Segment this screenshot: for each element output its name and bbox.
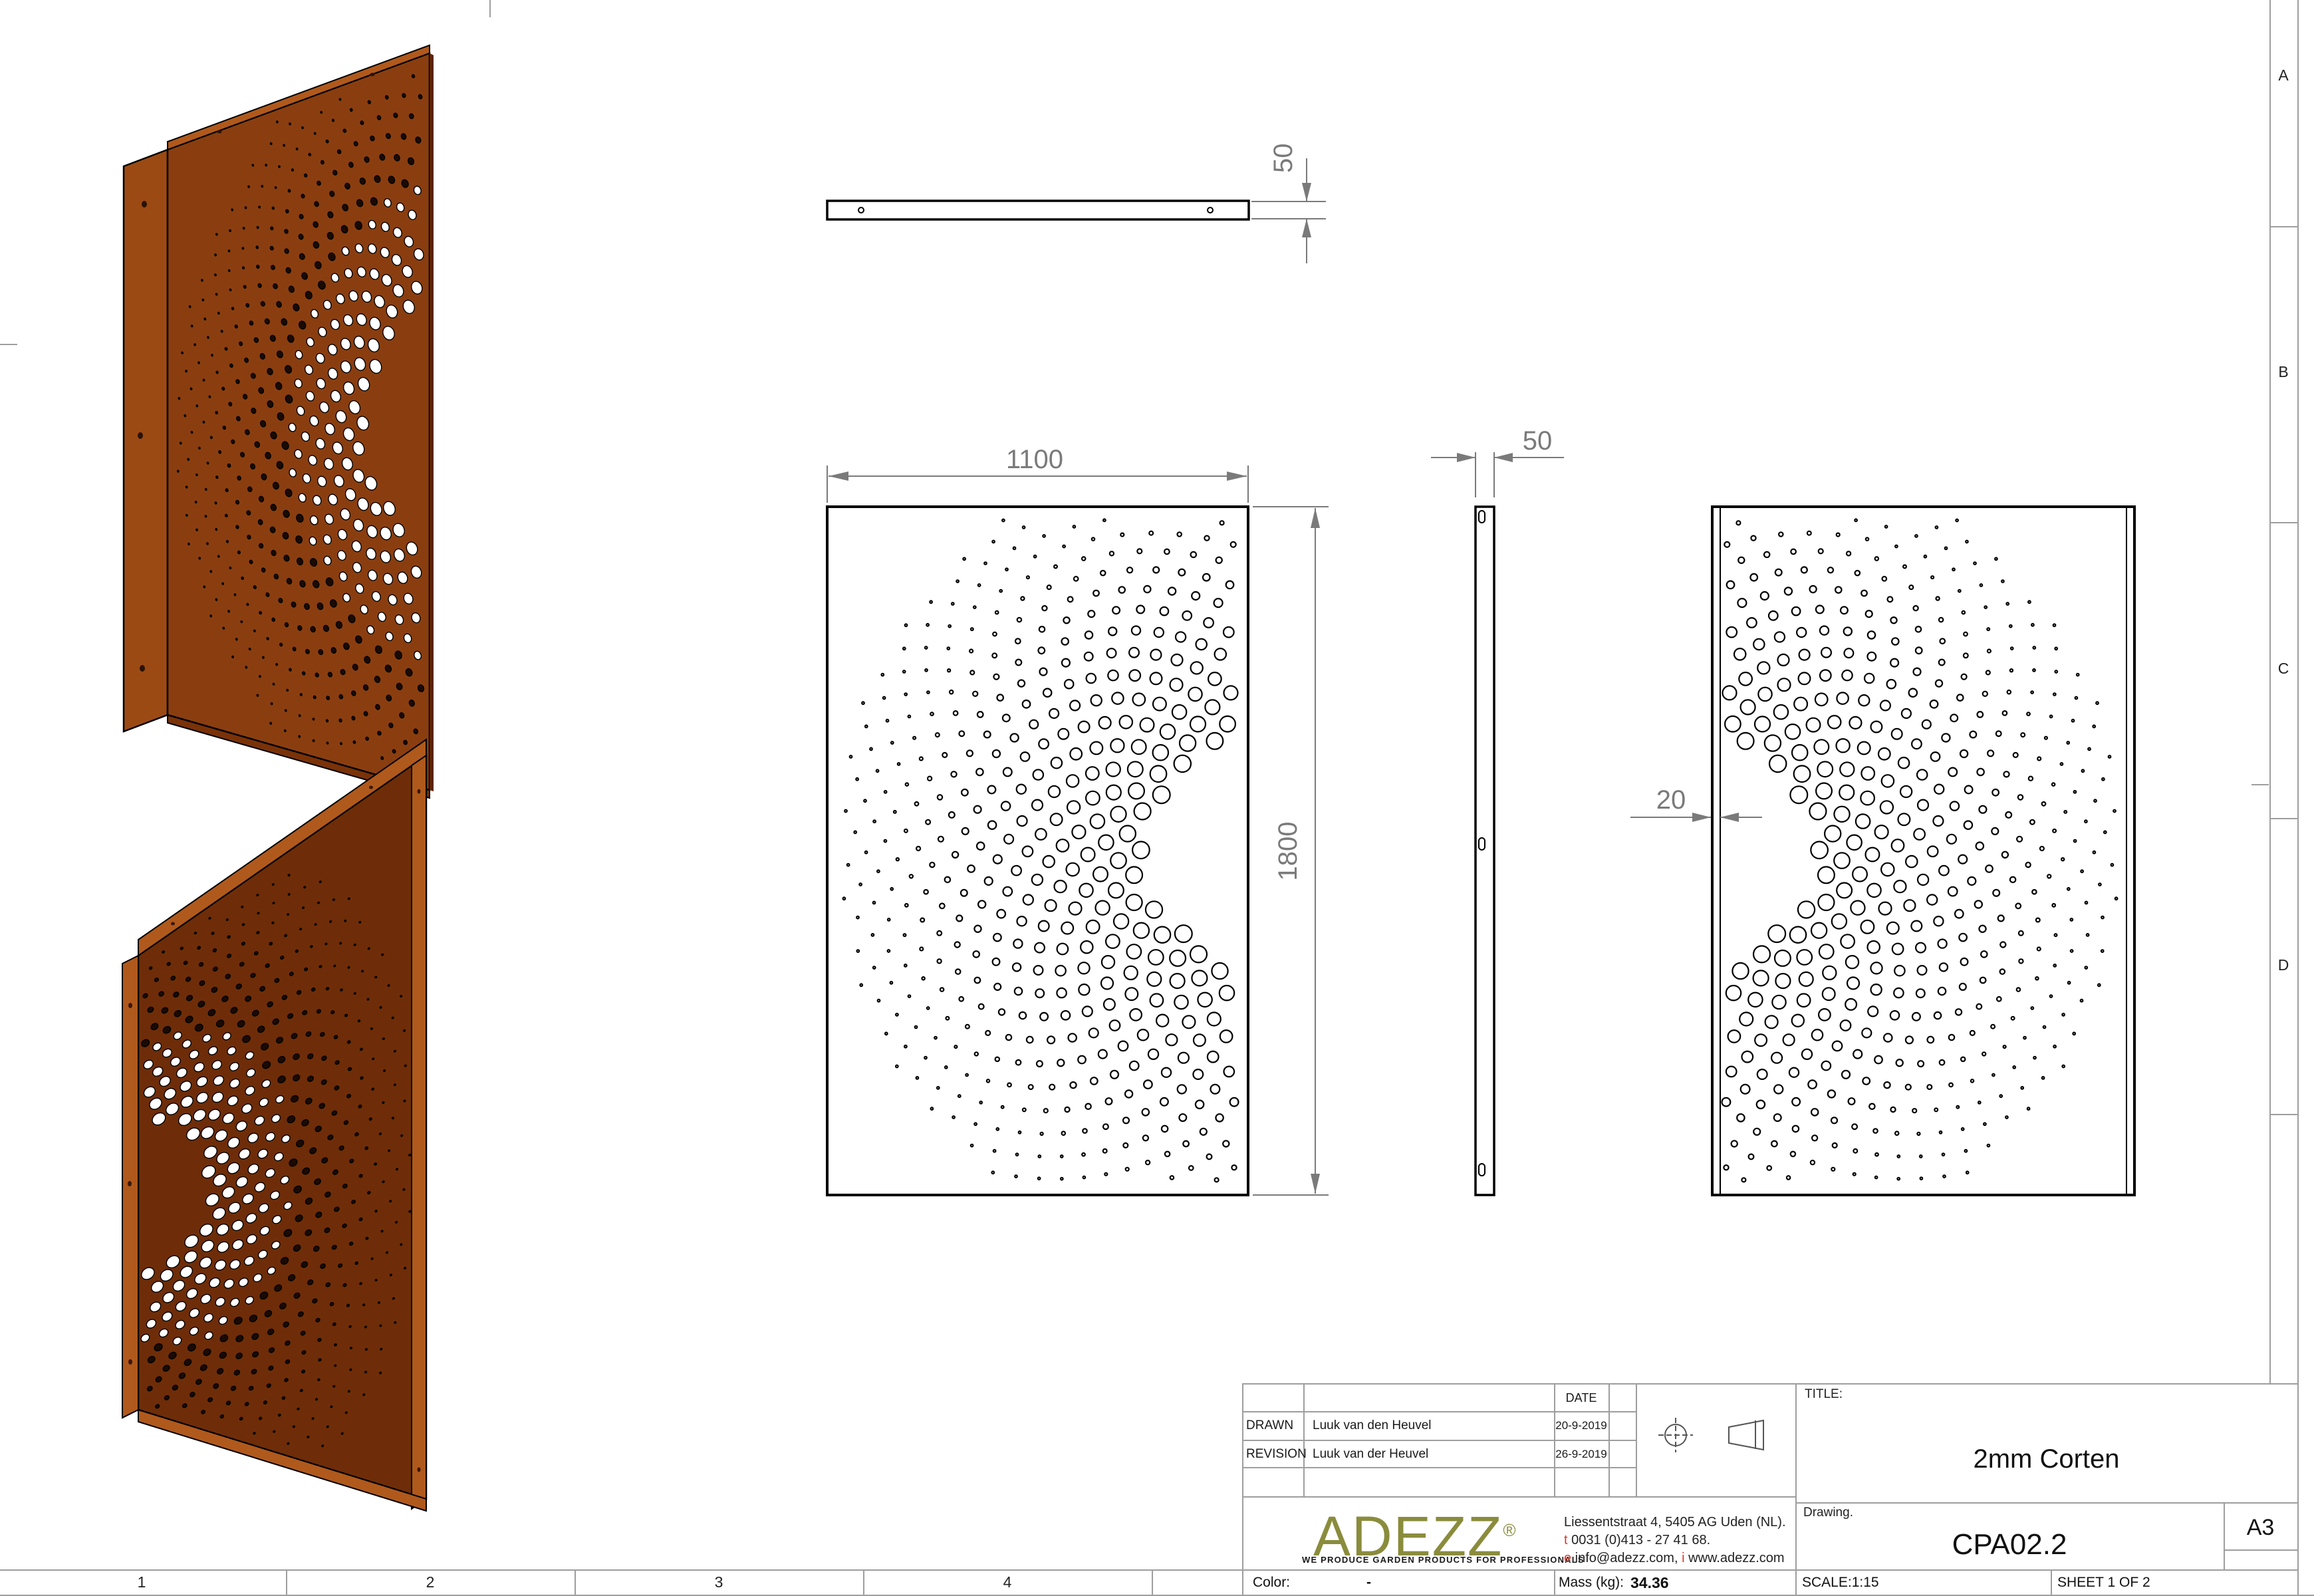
perforation-hole <box>1110 1071 1118 1079</box>
perforation-hole <box>309 153 311 156</box>
perforation-hole <box>1747 618 1757 628</box>
perforation-hole <box>2071 950 2073 952</box>
perforation-hole <box>1906 1085 1911 1090</box>
perforation-hole <box>2053 964 2056 967</box>
perforation-hole <box>1040 1013 1048 1021</box>
color-value: - <box>1366 1575 1371 1591</box>
perforation-hole <box>193 343 195 346</box>
perforation-hole <box>243 285 247 289</box>
perforation-hole <box>326 140 329 143</box>
web-address: www.adezz.com <box>1685 1551 1785 1565</box>
drawing-label: Drawing. <box>1803 1506 1853 1520</box>
dim-width: 1100 <box>827 445 1248 503</box>
perforation-hole <box>1890 1011 1899 1019</box>
perforation-hole <box>2033 669 2035 672</box>
perforation-hole <box>1017 618 1021 622</box>
perforation-hole <box>1165 1152 1170 1156</box>
perforation-hole <box>1104 1173 1107 1176</box>
cad-canvas: 1100 1800 50 <box>0 0 2314 1596</box>
perforation-hole <box>1751 536 1755 541</box>
perforation-hole <box>2052 783 2055 785</box>
perforation-hole <box>1842 670 1852 680</box>
iso-view-back <box>122 739 426 1511</box>
perforation-hole <box>1938 940 1947 948</box>
perforation-hole <box>1038 1177 1041 1180</box>
perforation-hole <box>873 902 876 904</box>
perforation-hole <box>967 750 973 756</box>
perforation-hole <box>946 1017 950 1020</box>
perforation-hole <box>1226 581 1234 589</box>
perforation-hole <box>1870 962 1882 974</box>
perforation-hole <box>215 528 217 531</box>
perforation-hole <box>1738 557 1744 563</box>
perforation-hole <box>341 1432 344 1435</box>
perforation-hole <box>2011 1017 2015 1020</box>
perforation-hole <box>2043 1026 2046 1029</box>
perforation-hole <box>1074 577 1079 581</box>
perforation-hole <box>1949 1035 1954 1040</box>
perforation-hole <box>2062 1013 2065 1016</box>
perforation-hole <box>857 950 860 952</box>
perforation-hole <box>1180 735 1196 751</box>
registered-mark: ® <box>1503 1520 1517 1540</box>
perforation-hole <box>1183 1141 1189 1147</box>
perforation-hole <box>1916 647 1922 654</box>
perforation-hole <box>1918 966 1927 975</box>
perforation-hole <box>1016 1153 1019 1156</box>
perforation-hole <box>1887 680 1896 688</box>
perforation-hole <box>896 1013 898 1016</box>
perforation-hole <box>1992 789 1999 796</box>
perforation-hole <box>1995 558 1997 561</box>
perforation-hole <box>903 670 906 673</box>
perforation-hole <box>178 397 180 400</box>
perforation-hole <box>205 515 207 517</box>
perforation-hole <box>1154 628 1164 637</box>
perforation-hole <box>1956 1106 1959 1109</box>
perforation-hole <box>1918 800 1928 811</box>
perforation-hole <box>884 791 887 793</box>
perforation-hole <box>1732 963 1748 979</box>
perforation-hole <box>1057 944 1069 955</box>
side-view <box>1476 507 1494 1195</box>
perforation-hole <box>181 352 183 354</box>
perforation-hole <box>215 293 217 296</box>
perforation-hole <box>987 1079 989 1082</box>
perforation-hole <box>885 1033 888 1035</box>
perforation-hole <box>1086 767 1099 780</box>
perforation-hole <box>1912 1013 1920 1021</box>
perforation-hole <box>1220 716 1235 732</box>
perforation-hole <box>1063 545 1065 548</box>
perforation-hole <box>1931 752 1940 761</box>
perforation-hole <box>1214 598 1223 607</box>
perforation-hole <box>1091 1077 1098 1085</box>
perforation-hole <box>1007 1083 1011 1087</box>
perforation-hole <box>1100 571 1105 575</box>
perforation-hole <box>1192 970 1207 986</box>
perforation-hole <box>1192 592 1200 600</box>
perforation-hole <box>1852 1124 1857 1129</box>
perforation-hole <box>388 984 390 987</box>
perforation-hole <box>1039 739 1049 749</box>
perforation-hole <box>1866 538 1868 541</box>
logo-tagline: WE PRODUCE GARDEN PRODUCTS FOR PROFESSIO… <box>1302 1555 1585 1565</box>
perforation-hole <box>1127 567 1132 573</box>
perforation-hole <box>988 786 996 794</box>
perforation-hole <box>1215 648 1226 660</box>
perforation-hole <box>272 207 275 209</box>
perforation-hole <box>1853 1173 1856 1176</box>
perforation-hole <box>1853 1050 1862 1059</box>
perforation-hole <box>2036 918 2040 922</box>
perforation-hole <box>975 978 981 984</box>
perforation-hole <box>2072 720 2075 722</box>
perforation-hole <box>1101 978 1113 990</box>
perforation-hole <box>1853 867 1867 882</box>
perforation-hole <box>215 501 217 504</box>
titleblock-line <box>1242 1440 1636 1441</box>
perforation-hole <box>1172 654 1183 666</box>
perforation-hole <box>1794 765 1811 782</box>
perforation-hole <box>1875 1153 1878 1156</box>
perforation-hole <box>249 648 251 650</box>
titleblock-line <box>2224 1549 2297 1551</box>
perforation-hole <box>1749 1154 1754 1160</box>
perforation-hole <box>1811 842 1828 859</box>
zone-divider <box>863 1569 864 1596</box>
perforation-hole <box>188 458 190 461</box>
perforation-hole <box>1868 941 1880 953</box>
perforation-hole <box>231 307 234 311</box>
perforation-hole <box>365 737 369 741</box>
perforation-hole <box>1797 950 1812 965</box>
perforation-hole <box>1067 863 1079 876</box>
perforation-hole <box>1755 1034 1767 1046</box>
perforation-hole <box>221 583 223 585</box>
perforation-hole <box>1912 1109 1916 1113</box>
perforation-hole <box>1129 648 1139 658</box>
perforation-hole <box>1970 1031 1975 1035</box>
perforation-hole <box>2087 934 2089 936</box>
perforation-hole <box>878 999 880 1002</box>
perforation-hole <box>1107 648 1116 658</box>
perforation-hole <box>2021 733 2025 737</box>
perforation-hole <box>1881 863 1894 876</box>
perforation-hole <box>2061 763 2063 765</box>
perforation-hole <box>354 944 356 946</box>
perforation-hole <box>1976 843 1984 850</box>
perforation-hole <box>1081 848 1095 862</box>
perforation-hole <box>1044 1109 1048 1113</box>
perforation-hole <box>1160 1098 1168 1106</box>
perforation-hole <box>313 739 315 742</box>
perforation-hole <box>1892 944 1904 955</box>
perforation-hole <box>978 584 981 587</box>
perforation-hole <box>2093 851 2096 854</box>
revision-date: 26-9-2019 <box>1554 1448 1608 1461</box>
perforation-hole <box>958 1095 961 1097</box>
perforation-hole <box>1903 565 1906 569</box>
perforation-hole <box>1847 978 1859 990</box>
zone-number: 2 <box>404 1573 457 1591</box>
perforation-hole <box>2026 863 2031 867</box>
perforation-hole <box>1728 1030 1741 1043</box>
perforation-hole <box>2113 810 2116 813</box>
perforation-hole <box>1723 686 1737 700</box>
perforation-hole <box>2053 624 2056 626</box>
perforation-hole <box>348 1390 350 1393</box>
perforation-hole <box>2031 1007 2034 1009</box>
projection-symbol <box>1658 1418 1763 1452</box>
perforation-hole <box>215 411 218 414</box>
perforation-hole <box>1065 1107 1069 1112</box>
perforation-hole <box>1799 972 1813 986</box>
dim-height: 1800 <box>1253 507 1329 1195</box>
perforation-hole <box>2075 697 2078 700</box>
border-line <box>2269 0 2271 1383</box>
perforation-hole <box>1798 901 1815 918</box>
perforation-hole <box>1775 632 1785 642</box>
perforation-hole <box>184 414 186 417</box>
perforation-hole <box>2067 741 2069 744</box>
perforation-hole <box>2000 942 2005 947</box>
perforation-hole <box>344 920 346 922</box>
perforation-hole <box>1981 951 1987 957</box>
perforation-hole <box>1023 700 1031 708</box>
perforation-hole <box>984 731 991 738</box>
perforation-hole <box>1018 680 1025 687</box>
perforation-hole <box>400 1244 402 1246</box>
perforation-hole <box>1070 1082 1076 1088</box>
perforation-hole <box>1992 828 1998 835</box>
perforation-hole <box>1952 569 1955 571</box>
drawing-number: CPA02.2 <box>1795 1528 2224 1561</box>
perforation-hole <box>1873 1129 1877 1132</box>
perforation-hole <box>208 917 211 920</box>
perforation-hole <box>1134 803 1151 820</box>
perforation-hole <box>959 731 964 736</box>
perforation-hole <box>1058 729 1069 739</box>
perforation-hole <box>1220 986 1234 1000</box>
perforation-hole <box>1958 855 1967 864</box>
perforation-hole <box>1823 966 1836 980</box>
perforation-hole <box>1875 557 1878 560</box>
perforation-hole <box>287 913 289 916</box>
perforation-hole <box>215 598 217 601</box>
iso-view-front <box>124 45 434 798</box>
perforation-hole <box>1208 1051 1219 1063</box>
perforation-hole <box>1753 970 1769 986</box>
perforation-hole <box>1842 1071 1850 1079</box>
perforation-hole <box>1006 1035 1011 1040</box>
perforation-hole <box>1797 628 1806 637</box>
zone-divider <box>2269 1114 2297 1115</box>
perforation-hole <box>1845 648 1854 658</box>
perforation-hole <box>1868 1006 1878 1016</box>
perforation-hole <box>275 663 278 666</box>
perforation-hole <box>287 689 289 692</box>
perforation-hole <box>1120 716 1132 728</box>
perforation-hole <box>873 820 876 823</box>
perforation-hole <box>1878 748 1890 760</box>
perforation-hole <box>1023 526 1025 529</box>
perforation-hole <box>882 674 884 676</box>
perforation-hole <box>872 934 874 936</box>
perforation-hole <box>1016 1060 1021 1065</box>
perforation-hole <box>1920 1155 1922 1158</box>
perforation-hole <box>1892 729 1902 739</box>
perforation-hole <box>1898 1155 1900 1158</box>
perforation-hole <box>1110 1020 1120 1031</box>
perforation-hole <box>999 590 1002 593</box>
perforation-hole <box>1045 900 1057 911</box>
perforation-hole <box>186 514 188 517</box>
perforation-hole <box>2098 984 2101 987</box>
perforation-hole <box>988 821 996 829</box>
perforation-hole <box>1917 1132 1920 1135</box>
perforation-hole <box>906 783 908 785</box>
perforation-hole <box>1061 1155 1063 1158</box>
perforation-hole <box>864 799 866 802</box>
perforation-hole <box>1894 988 1903 997</box>
perforation-hole <box>1779 532 1783 536</box>
perforation-hole <box>904 934 906 936</box>
perforation-hole <box>1190 946 1207 962</box>
perforation-hole <box>382 1180 385 1183</box>
perforation-hole <box>256 245 259 249</box>
perforation-hole <box>2037 948 2041 951</box>
perforation-hole <box>1178 569 1185 576</box>
perforation-hole <box>235 525 239 529</box>
perforation-hole <box>340 742 342 745</box>
perforation-hole <box>1191 662 1203 674</box>
perforation-hole <box>1959 934 1967 942</box>
perforation-hole <box>1849 717 1861 729</box>
perforation-hole <box>1837 533 1840 537</box>
perforation-hole <box>299 928 302 930</box>
perforation-hole <box>2104 831 2107 834</box>
perforation-hole <box>1940 638 1945 644</box>
perforation-hole <box>1013 963 1021 971</box>
perforation-hole <box>302 906 305 909</box>
perforation-hole <box>1871 984 1882 995</box>
perforation-hole <box>1828 1090 1835 1097</box>
perforation-hole <box>1793 1126 1799 1132</box>
perforation-hole <box>927 691 930 694</box>
perforation-hole <box>1890 659 1898 667</box>
perforation-hole <box>1162 1068 1171 1077</box>
perforation-hole <box>1939 866 1949 876</box>
perforation-hole <box>1193 1069 1203 1079</box>
perforation-hole <box>1979 926 1986 932</box>
zone-divider <box>1152 1569 1153 1596</box>
perforation-hole <box>273 1430 275 1433</box>
perforation-hole <box>1818 894 1834 910</box>
perforation-hole <box>1940 1131 1942 1134</box>
perforation-hole <box>1755 716 1770 731</box>
perforation-hole <box>1108 627 1116 635</box>
perforation-hole <box>1062 659 1070 667</box>
perforation-hole <box>332 898 335 901</box>
perforation-hole <box>915 1026 918 1029</box>
perforation-hole <box>1765 1015 1778 1028</box>
perforation-hole <box>1231 542 1236 547</box>
perforation-hole <box>231 209 233 211</box>
perforation-hole <box>994 984 1001 990</box>
perforation-hole <box>1817 761 1833 777</box>
perforation-hole <box>926 624 929 626</box>
perforation-hole <box>850 755 852 758</box>
perforation-hole <box>299 714 301 717</box>
perforation-hole <box>1112 606 1120 614</box>
perforation-hole <box>1208 672 1221 686</box>
perforation-hole <box>1936 526 1938 529</box>
perforation-hole <box>403 1029 406 1032</box>
perforation-hole <box>1875 825 1888 839</box>
perforation-hole <box>903 648 906 650</box>
perforation-hole <box>1043 535 1045 537</box>
perforation-hole <box>1976 1004 1982 1009</box>
perforation-hole <box>1961 958 1968 966</box>
perforation-hole <box>978 900 985 908</box>
perforation-hole <box>1034 966 1043 975</box>
perforation-hole <box>191 431 193 434</box>
perforation-hole <box>379 1132 382 1135</box>
perforation-hole <box>361 970 364 973</box>
perforation-hole <box>1150 672 1162 684</box>
perforation-hole <box>1856 814 1870 828</box>
perforation-hole <box>1885 525 1888 528</box>
dim-height-label: 1800 <box>1273 822 1303 881</box>
perforation-hole <box>231 656 233 658</box>
perforation-hole <box>997 910 1005 918</box>
titleblock-line <box>1795 1383 1797 1596</box>
perforation-hole <box>1808 1080 1817 1089</box>
perforation-hole <box>975 1052 978 1055</box>
perforation-hole <box>1948 887 1958 896</box>
perforation-hole <box>1765 735 1781 751</box>
perforation-hole <box>1033 769 1043 779</box>
perforation-hole <box>1019 1131 1021 1134</box>
perforation-hole <box>1002 519 1005 522</box>
perforation-hole <box>1057 988 1066 997</box>
perforation-hole <box>2053 693 2056 696</box>
perforation-hole <box>1915 535 1918 537</box>
perforation-hole <box>1215 1178 1219 1182</box>
perforation-hole <box>2032 890 2036 894</box>
perforation-hole <box>1032 800 1043 811</box>
perforation-hole <box>908 995 911 997</box>
perforation-hole <box>321 111 322 114</box>
perforation-hole <box>1835 587 1841 593</box>
perforation-hole <box>970 670 974 674</box>
perforation-hole <box>2019 931 2023 936</box>
perforation-hole <box>2002 852 2008 858</box>
perforation-hole <box>247 186 249 188</box>
perforation-hole <box>1940 1060 1945 1065</box>
perforation-hole <box>1178 532 1182 536</box>
perforation-hole <box>973 606 976 608</box>
perforation-hole <box>358 921 361 924</box>
perforation-hole <box>2042 802 2046 806</box>
perforation-hole <box>1840 762 1854 776</box>
perforation-hole <box>1792 1098 1800 1106</box>
perforation-hole <box>2109 755 2111 758</box>
perforation-hole <box>1166 1034 1177 1045</box>
perforation-hole <box>1224 1067 1235 1077</box>
perforation-hole <box>950 690 953 694</box>
